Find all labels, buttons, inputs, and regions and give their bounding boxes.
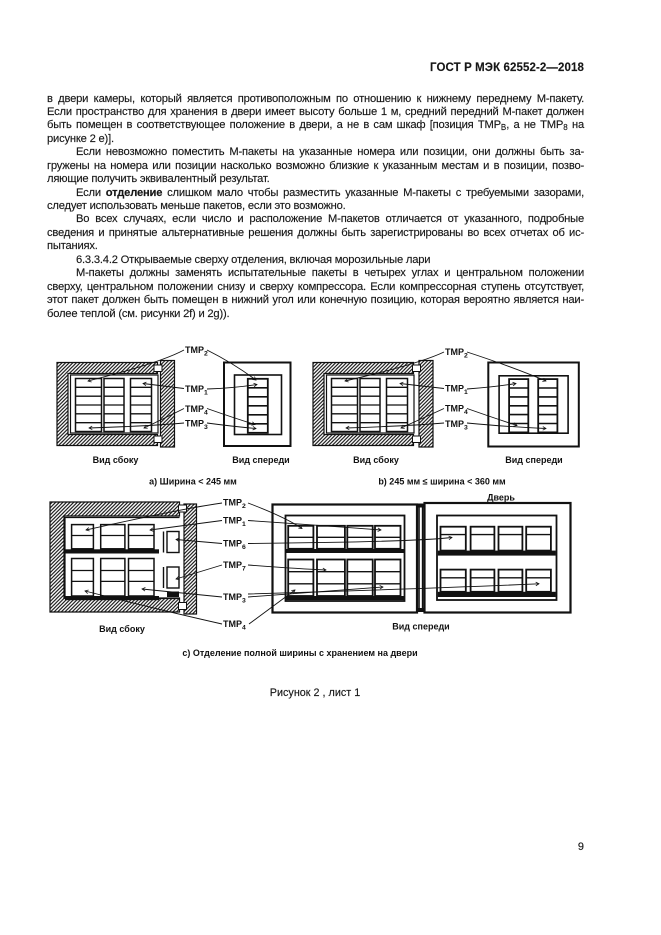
svg-text:TMP1: TMP1 bbox=[185, 384, 208, 397]
svg-text:Дверь: Дверь bbox=[487, 493, 515, 503]
svg-text:TMP4: TMP4 bbox=[185, 404, 208, 417]
svg-text:TMP3: TMP3 bbox=[445, 419, 468, 432]
svg-text:TMP7: TMP7 bbox=[223, 560, 246, 573]
svg-text:TMP4: TMP4 bbox=[445, 404, 468, 417]
svg-text:а) Ширина < 245 мм: а) Ширина < 245 мм bbox=[149, 477, 237, 487]
svg-text:TMP3: TMP3 bbox=[185, 419, 208, 432]
svg-text:с) Отделение полной ширины с х: с) Отделение полной ширины с хранением н… bbox=[182, 648, 417, 658]
svg-text:b) 245 мм ≤ ширина < 360 мм: b) 245 мм ≤ ширина < 360 мм bbox=[378, 477, 506, 487]
svg-text:Вид спереди: Вид спереди bbox=[232, 455, 289, 465]
svg-text:TMP2: TMP2 bbox=[185, 345, 208, 358]
svg-text:TMP2: TMP2 bbox=[445, 347, 468, 360]
svg-text:Вид сбоку: Вид сбоку bbox=[353, 455, 399, 465]
svg-text:Вид спереди: Вид спереди bbox=[392, 622, 449, 632]
svg-text:TMP2: TMP2 bbox=[223, 498, 246, 511]
svg-text:TMP1: TMP1 bbox=[445, 384, 468, 397]
svg-text:TMP1: TMP1 bbox=[223, 516, 246, 529]
svg-text:Вид спереди: Вид спереди bbox=[505, 455, 562, 465]
svg-text:TMP3: TMP3 bbox=[223, 592, 246, 605]
svg-text:TMP4: TMP4 bbox=[223, 619, 246, 632]
svg-text:Вид сбоку: Вид сбоку bbox=[93, 455, 139, 465]
svg-text:Вид сбоку: Вид сбоку bbox=[99, 624, 145, 634]
svg-text:TMP6: TMP6 bbox=[223, 539, 246, 552]
